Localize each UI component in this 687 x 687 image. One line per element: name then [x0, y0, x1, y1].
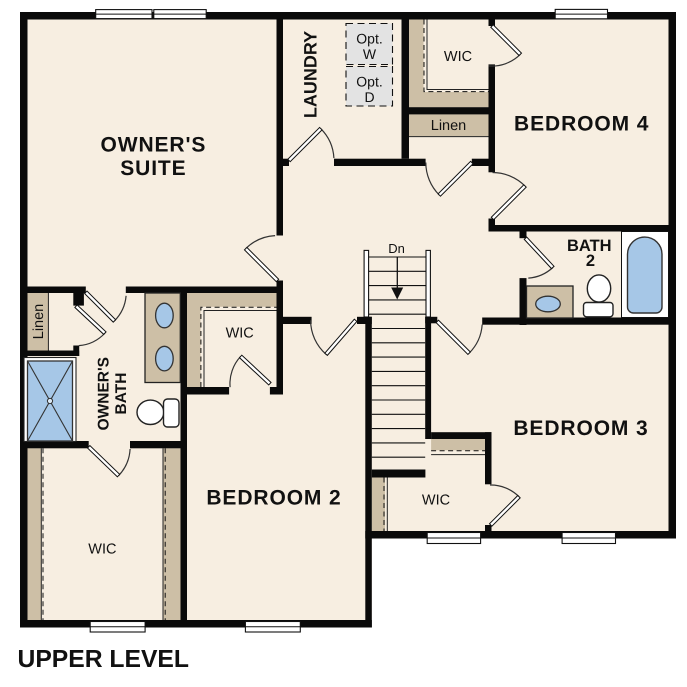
svg-text:Opt.: Opt.	[356, 74, 382, 90]
svg-text:BEDROOM 2: BEDROOM 2	[206, 487, 341, 510]
svg-text:SUITE: SUITE	[120, 157, 186, 180]
svg-text:Opt.: Opt.	[356, 31, 382, 47]
svg-text:Linen: Linen	[31, 304, 47, 339]
svg-text:WIC: WIC	[422, 493, 450, 509]
svg-text:LAUNDRY: LAUNDRY	[301, 31, 321, 118]
svg-text:W: W	[363, 46, 377, 62]
svg-text:WIC: WIC	[444, 49, 472, 65]
svg-text:WIC: WIC	[88, 542, 116, 558]
svg-text:OWNER'S: OWNER'S	[96, 357, 113, 430]
svg-text:BATH: BATH	[113, 373, 130, 415]
svg-text:WIC: WIC	[226, 326, 254, 342]
svg-text:UPPER LEVEL: UPPER LEVEL	[18, 646, 189, 673]
svg-text:Dn: Dn	[388, 241, 405, 256]
svg-text:D: D	[364, 89, 374, 105]
svg-text:OWNER'S: OWNER'S	[101, 134, 207, 157]
svg-text:BEDROOM 4: BEDROOM 4	[514, 113, 649, 136]
svg-text:BEDROOM 3: BEDROOM 3	[513, 417, 648, 440]
svg-text:2: 2	[586, 252, 595, 270]
svg-text:Linen: Linen	[431, 118, 466, 134]
